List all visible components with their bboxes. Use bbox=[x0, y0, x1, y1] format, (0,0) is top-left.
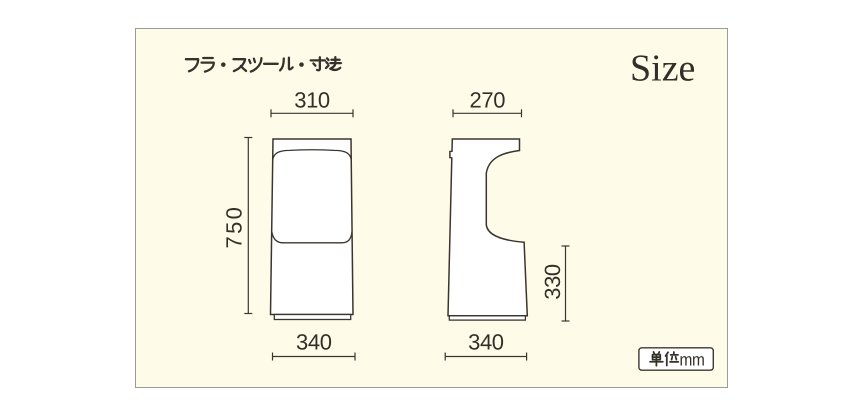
svg-text:mm: mm bbox=[680, 349, 705, 369]
svg-text:340: 340 bbox=[468, 330, 504, 355]
svg-text:270: 270 bbox=[470, 87, 506, 112]
svg-text:340: 340 bbox=[296, 330, 332, 355]
svg-text:310: 310 bbox=[294, 87, 330, 112]
svg-text:Size: Size bbox=[630, 48, 695, 90]
svg-text:330: 330 bbox=[540, 264, 565, 300]
svg-text:750: 750 bbox=[222, 207, 247, 248]
